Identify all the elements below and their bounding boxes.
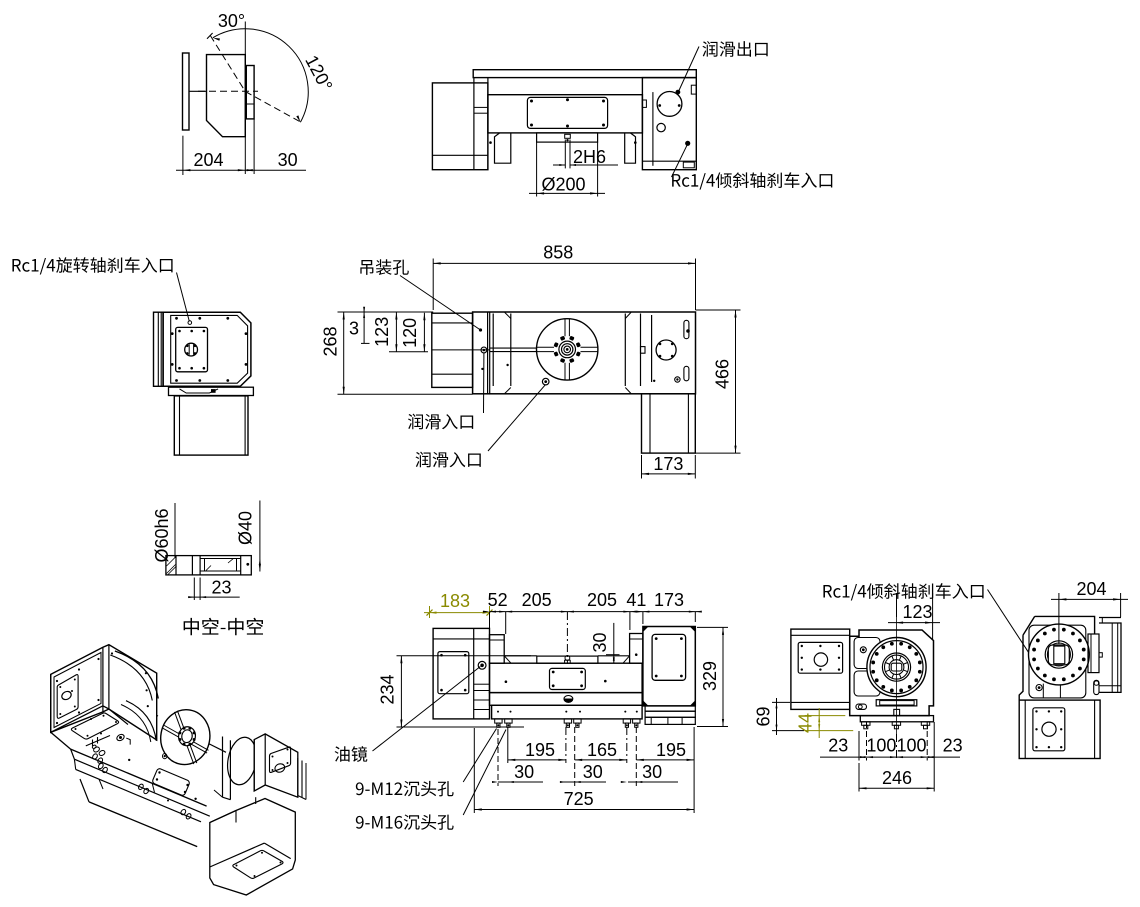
svg-text:120: 120 <box>400 318 420 348</box>
svg-text:204: 204 <box>1076 579 1106 599</box>
svg-text:100: 100 <box>866 736 896 756</box>
svg-text:466: 466 <box>712 359 732 389</box>
svg-text:69: 69 <box>754 706 774 726</box>
svg-text:30: 30 <box>278 150 298 170</box>
svg-text:23: 23 <box>943 736 963 756</box>
svg-text:329: 329 <box>700 661 720 691</box>
svg-text:30: 30 <box>514 762 534 782</box>
svg-text:Ø40: Ø40 <box>236 511 256 545</box>
svg-text:234: 234 <box>378 674 398 704</box>
svg-text:173: 173 <box>654 590 684 610</box>
svg-text:123: 123 <box>372 317 392 347</box>
svg-text:23: 23 <box>211 578 231 598</box>
svg-text:205: 205 <box>522 590 552 610</box>
svg-text:195: 195 <box>656 740 686 760</box>
svg-text:30°: 30° <box>218 11 245 31</box>
svg-text:858: 858 <box>543 243 573 263</box>
svg-text:30: 30 <box>583 762 603 782</box>
svg-text:183: 183 <box>440 591 470 611</box>
svg-text:246: 246 <box>882 768 912 788</box>
svg-text:30: 30 <box>590 632 610 652</box>
svg-text:Ø60h6: Ø60h6 <box>152 508 172 562</box>
svg-text:41: 41 <box>626 590 646 610</box>
svg-text:173: 173 <box>653 454 683 474</box>
svg-text:123: 123 <box>902 602 932 622</box>
svg-text:725: 725 <box>564 789 594 809</box>
svg-text:204: 204 <box>193 150 223 170</box>
svg-text:100: 100 <box>896 736 926 756</box>
svg-text:165: 165 <box>587 740 617 760</box>
svg-text:2H6: 2H6 <box>573 147 606 167</box>
svg-text:3: 3 <box>349 319 359 339</box>
svg-text:52: 52 <box>488 590 508 610</box>
svg-text:195: 195 <box>525 740 555 760</box>
svg-text:Ø200: Ø200 <box>542 175 586 195</box>
svg-text:268: 268 <box>321 326 341 356</box>
svg-text:23: 23 <box>828 736 848 756</box>
svg-text:44: 44 <box>796 713 816 733</box>
svg-text:30: 30 <box>642 762 662 782</box>
svg-text:205: 205 <box>587 590 617 610</box>
